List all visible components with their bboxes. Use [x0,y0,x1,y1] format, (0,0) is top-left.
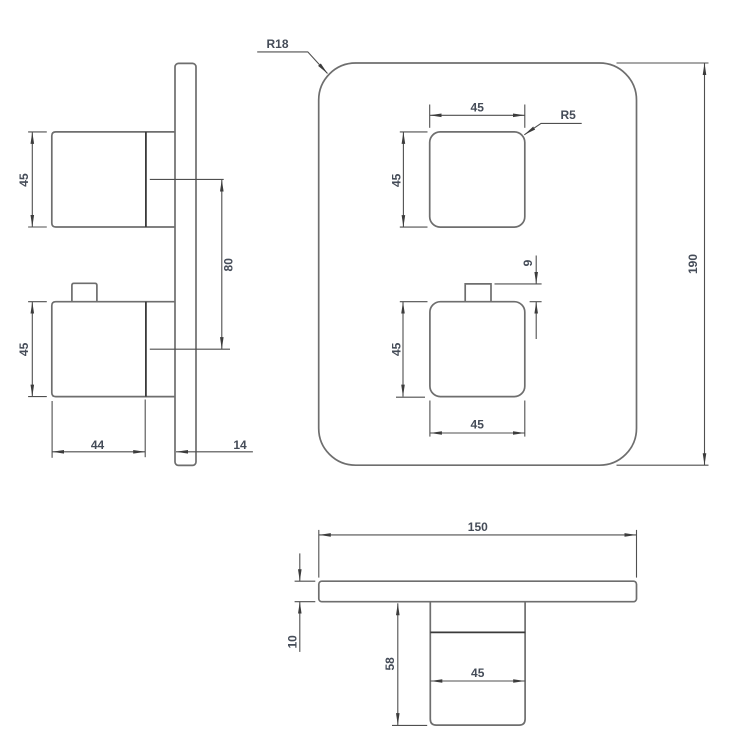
svg-text:150: 150 [468,520,488,534]
svg-text:45: 45 [389,173,403,187]
svg-text:80: 80 [222,258,236,272]
svg-text:R18: R18 [266,37,288,51]
svg-text:45: 45 [471,666,485,680]
svg-text:45: 45 [17,173,31,187]
svg-text:45: 45 [471,101,485,115]
svg-text:190: 190 [686,254,700,274]
svg-text:10: 10 [285,635,299,649]
svg-text:44: 44 [91,438,105,452]
svg-text:45: 45 [471,417,485,431]
svg-text:45: 45 [389,342,403,356]
svg-text:58: 58 [383,657,397,671]
svg-text:14: 14 [233,438,247,452]
svg-text:R5: R5 [561,108,577,122]
svg-text:9: 9 [521,259,535,266]
svg-text:45: 45 [17,342,31,356]
